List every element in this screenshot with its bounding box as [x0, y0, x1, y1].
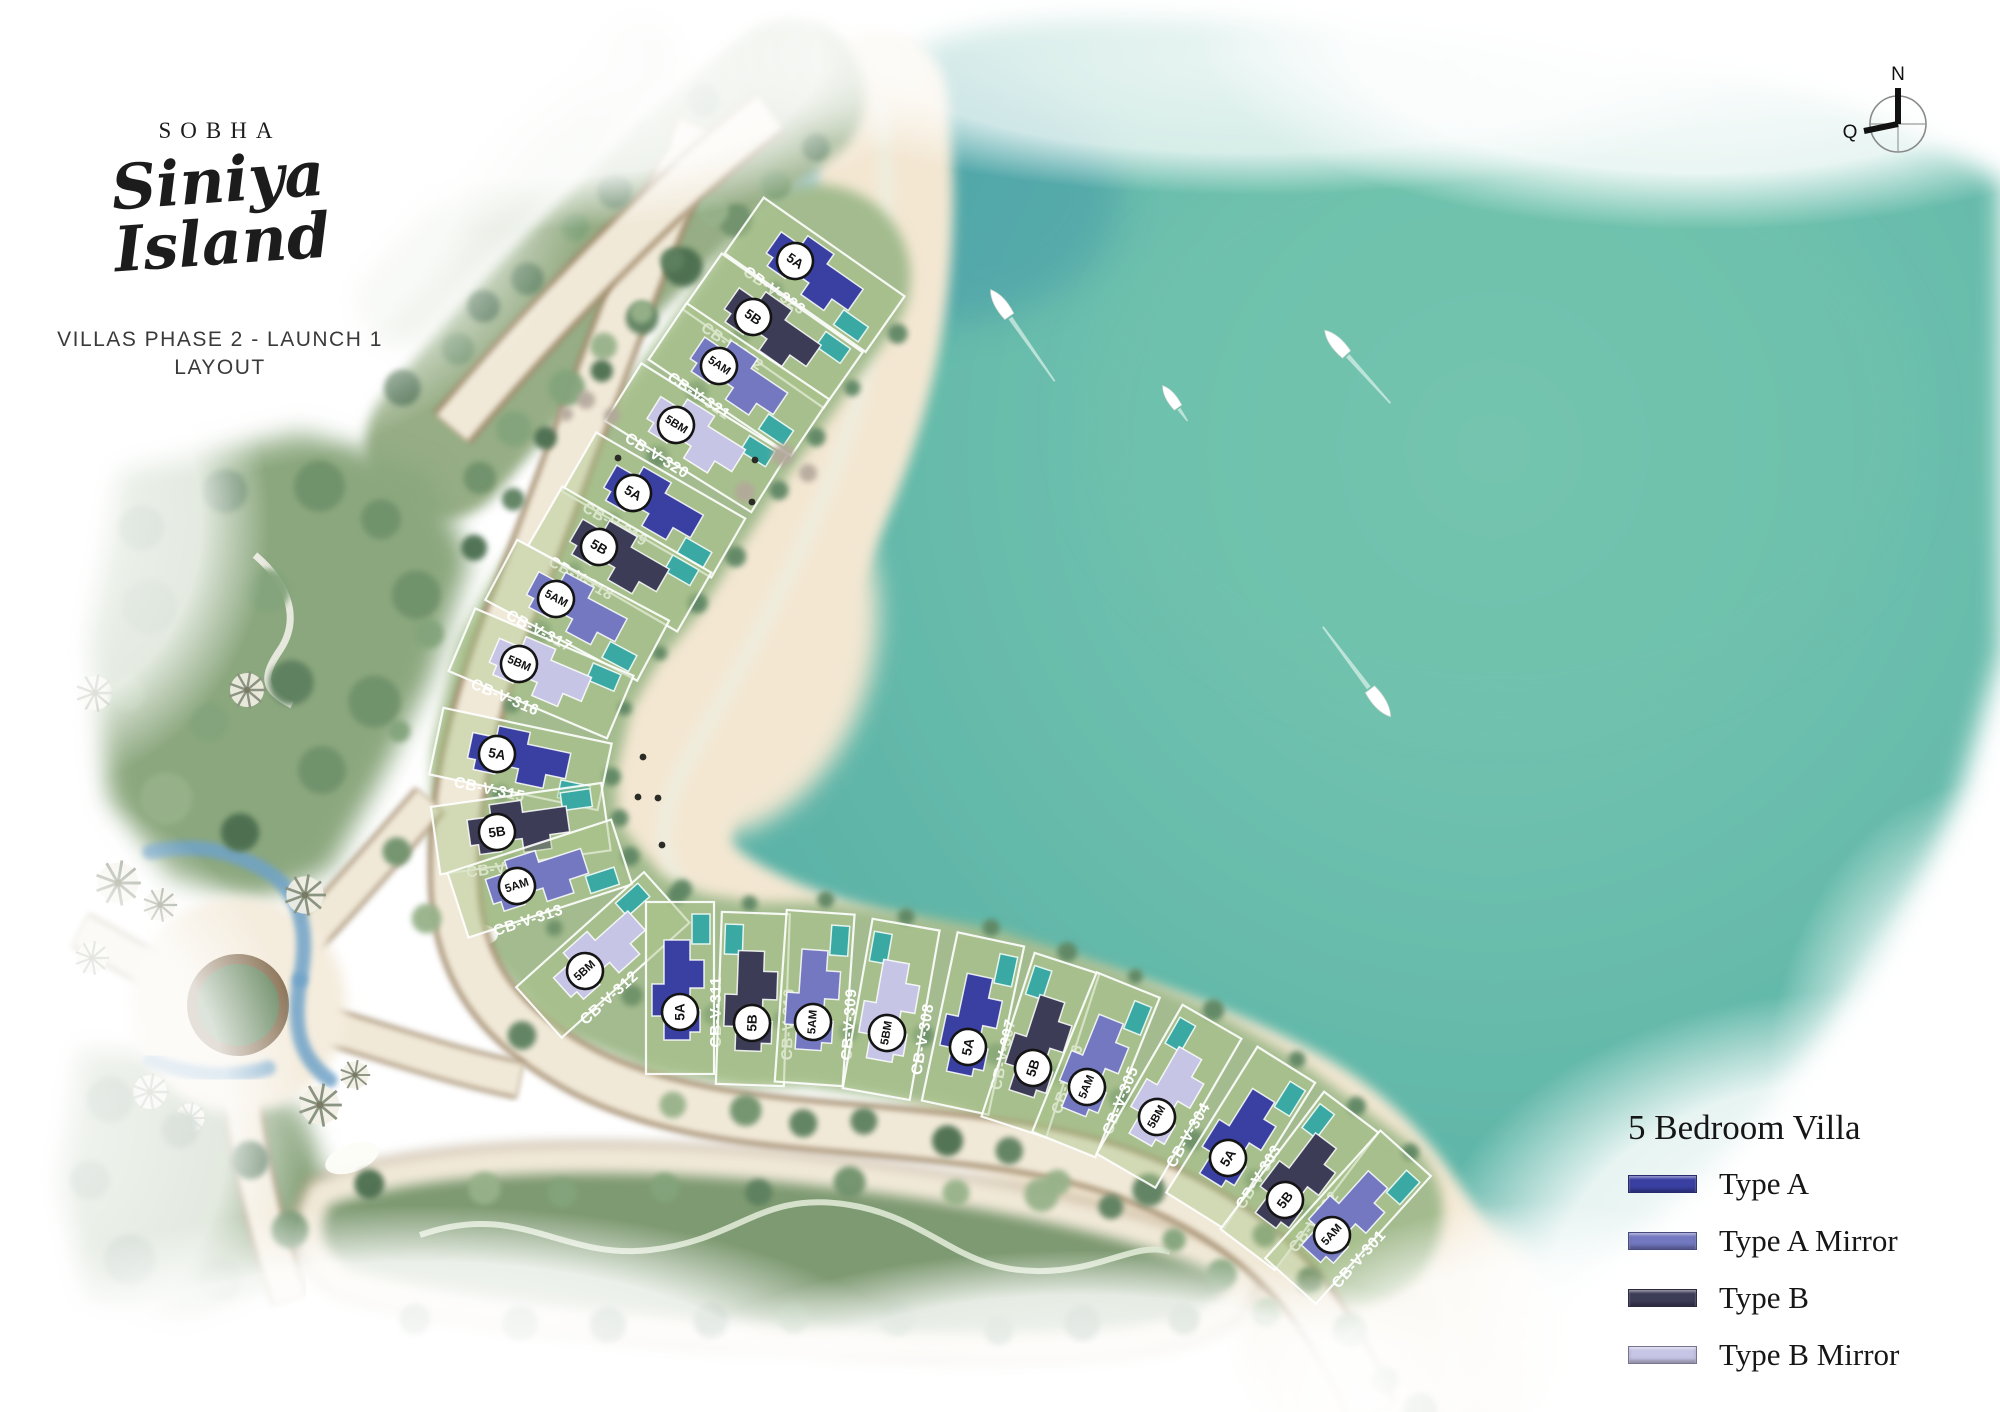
tree [1128, 969, 1143, 984]
tree [659, 1092, 686, 1119]
plan-subtitle: VILLAS PHASE 2 - LAUNCH 1 LAYOUT [55, 326, 385, 383]
tree [221, 813, 259, 851]
tree [591, 360, 613, 382]
qibla-needle [1864, 124, 1898, 131]
tree [298, 746, 346, 794]
palm-tree [341, 1060, 370, 1090]
tree [388, 720, 410, 742]
villa-type-code: 5B [744, 1014, 760, 1032]
tree [412, 904, 442, 934]
plan-subtitle-line2: LAYOUT [55, 354, 385, 382]
tree [789, 1109, 817, 1137]
tree [496, 411, 532, 447]
legend-item-5BM: Type B Mirror [1628, 1337, 1998, 1373]
logo-block: SOBHA Siniya Island VILLAS PHASE 2 - LAU… [55, 118, 385, 383]
tree [1057, 942, 1077, 962]
villa-pool [830, 925, 850, 956]
villa-type-code: 5AM [806, 1009, 820, 1034]
beach-dot [635, 794, 642, 801]
tree [660, 248, 684, 272]
legend-item-5B: Type B [1628, 1280, 1998, 1316]
tree [361, 499, 401, 539]
legend-swatch-5AM [1628, 1232, 1697, 1250]
beach-dot [640, 754, 647, 761]
tree [850, 1108, 877, 1135]
tree [461, 535, 487, 561]
tree [834, 1166, 866, 1198]
legend-item-5AM: Type A Mirror [1628, 1223, 1998, 1259]
legend-label: Type A Mirror [1719, 1223, 1898, 1259]
legend-rows: Type AType A MirrorType BType B Mirror [1628, 1166, 1998, 1373]
tree [844, 380, 860, 396]
project-name-script: Siniya Island [51, 139, 389, 286]
tree [383, 837, 412, 866]
tree [932, 1125, 963, 1156]
tree [807, 428, 826, 447]
beach-umbrella [577, 391, 595, 409]
palm-trunk [244, 687, 250, 693]
tree [508, 1021, 537, 1050]
beach-dot [749, 499, 756, 506]
qibla-label: Q [1843, 122, 1858, 143]
tree [996, 1137, 1023, 1164]
tree [1024, 1178, 1058, 1212]
beach-umbrella [772, 444, 794, 466]
tree [673, 879, 692, 898]
tree [1289, 1051, 1306, 1068]
beach-dot [615, 455, 622, 462]
north-label: N [1891, 64, 1905, 85]
beach-umbrella [559, 407, 573, 421]
legend-swatch-5A [1628, 1175, 1697, 1193]
tree [630, 300, 653, 323]
legend-label: Type B [1719, 1280, 1809, 1316]
legend: 5 Bedroom Villa Type AType A MirrorType … [1628, 1108, 1998, 1394]
villa-type-code: 5B [487, 823, 506, 840]
brand-name: SOBHA [55, 118, 385, 144]
plan-subtitle-line1: VILLAS PHASE 2 - LAUNCH 1 [55, 326, 385, 354]
tree [502, 488, 525, 511]
tree [392, 571, 441, 620]
tree [464, 462, 496, 494]
legend-label: Type A [1719, 1166, 1809, 1202]
beach-umbrella [604, 408, 620, 424]
tree [817, 891, 834, 908]
tree [348, 676, 400, 728]
tree [1099, 1194, 1124, 1219]
tree [590, 333, 617, 360]
legend-item-5A: Type A [1628, 1166, 1998, 1202]
legend-swatch-5B [1628, 1289, 1697, 1307]
palm-trunk [353, 1073, 358, 1078]
tree [730, 1094, 762, 1126]
palm-trunk [302, 892, 309, 899]
villa-CB-V-311[interactable]: 5ACB-V-311 [646, 902, 725, 1074]
tree [548, 1178, 577, 1207]
tree [888, 324, 908, 344]
tree [294, 461, 345, 512]
beach-dot [659, 842, 666, 849]
beach-dot [752, 457, 759, 464]
tree [745, 1179, 772, 1206]
legend-label: Type B Mirror [1719, 1337, 1899, 1373]
villa-type-code: 5A [673, 1003, 688, 1021]
tree [943, 1179, 970, 1206]
palm-trunk [317, 1102, 324, 1109]
beach-dot [655, 795, 662, 802]
siniya-island-masterplan: { "title": { "brand": "SOBHA", "script":… [0, 0, 2000, 1412]
tree [769, 481, 788, 500]
tree [140, 773, 192, 825]
legend-swatch-5BM [1628, 1346, 1697, 1364]
tree [983, 919, 1000, 936]
tree [269, 660, 314, 705]
villa-pool [692, 914, 710, 944]
tree [534, 427, 557, 450]
compass: N Q [1838, 58, 1968, 178]
tree [414, 619, 443, 648]
tree [651, 1174, 680, 1203]
tree [354, 1169, 384, 1199]
tree [742, 896, 757, 911]
legend-heading: 5 Bedroom Villa [1628, 1108, 1998, 1148]
tree [468, 1172, 500, 1204]
beach-umbrella [799, 464, 817, 482]
tree [1162, 1228, 1185, 1251]
